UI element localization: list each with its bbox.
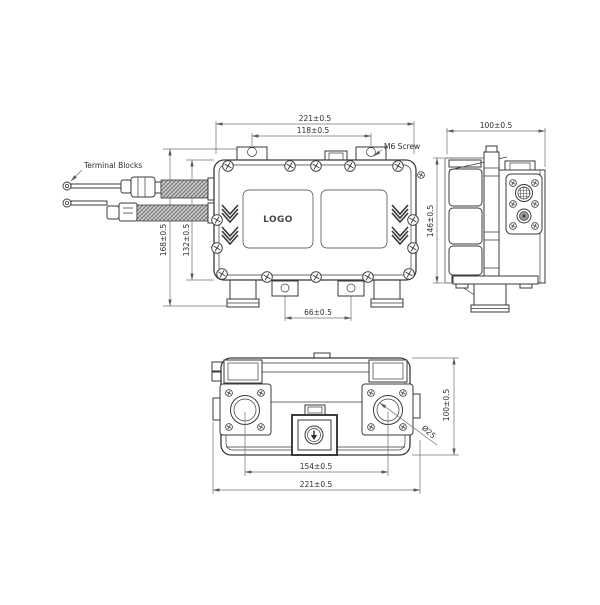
logo-text: LOGO (263, 215, 293, 225)
dim-text-front-body-height: 132±0.5 (182, 224, 191, 257)
dim-front-bottom-tab-spacing: 66±0.5 (285, 293, 351, 321)
fin-block (449, 246, 482, 275)
bottom-tab-right (338, 281, 364, 296)
technical-drawing-page: 221±0.5 118±0.5 168±0.5 132±0.5 (0, 0, 600, 600)
ring-terminal-icon (63, 182, 71, 190)
side-body (445, 146, 545, 312)
enclosure-outline (214, 160, 416, 280)
braided-cable-lower (137, 205, 208, 221)
side-bottom-port (474, 284, 506, 305)
dim-text-front-overall-width: 221±0.5 (299, 114, 332, 123)
side-view: 100±0.5 146±0.5 (426, 121, 545, 312)
m6-screw-label: M6 Screw (384, 142, 420, 151)
front-body: LOGO (208, 147, 424, 307)
round-connector-small-icon (517, 209, 531, 223)
bottom-tab-left (272, 281, 298, 296)
dim-text-bottom-depth: 100±0.5 (442, 389, 451, 422)
dim-front-mount-hole-spacing: 118±0.5 (252, 126, 371, 146)
port-plate-left (220, 384, 271, 435)
dim-text-front-bottom-tab-spacing: 66±0.5 (304, 308, 332, 317)
mount-tab-left (237, 147, 267, 161)
round-connector-large-icon (516, 185, 533, 202)
bottom-body (212, 353, 420, 455)
bottom-view: 154±0.5 221±0.5 100±0.5 Ø25 (212, 353, 459, 494)
cable-harness (63, 177, 208, 221)
port-plate-right (362, 384, 413, 435)
center-rail (484, 152, 499, 283)
fin-block (449, 208, 482, 244)
dim-text-bottom-port-spacing: 154±0.5 (300, 462, 333, 471)
dim-side-height: 146±0.5 (426, 158, 444, 283)
bottom-port-left (230, 280, 256, 299)
braided-cable-upper (161, 180, 208, 198)
dim-text-front-mount-hole-spacing: 118±0.5 (297, 126, 330, 135)
dim-text-side-height: 146±0.5 (426, 205, 435, 238)
dim-text-port-diameter: Ø25 (420, 423, 438, 440)
dim-text-front-overall-height: 168±0.5 (159, 224, 168, 257)
dim-text-bottom-overall-width: 221±0.5 (300, 480, 333, 489)
dim-text-side-width: 100±0.5 (480, 121, 513, 130)
terminal-blocks-label: Terminal Blocks (83, 161, 142, 170)
ring-terminal-icon (63, 199, 71, 207)
front-view: 221±0.5 118±0.5 168±0.5 132±0.5 (63, 114, 424, 321)
bottom-port-right (374, 280, 400, 299)
technical-drawing-canvas: 221±0.5 118±0.5 168±0.5 132±0.5 (0, 0, 600, 600)
fin-block (449, 169, 482, 206)
breather-valve (292, 415, 337, 455)
mount-tab-right (356, 147, 386, 161)
